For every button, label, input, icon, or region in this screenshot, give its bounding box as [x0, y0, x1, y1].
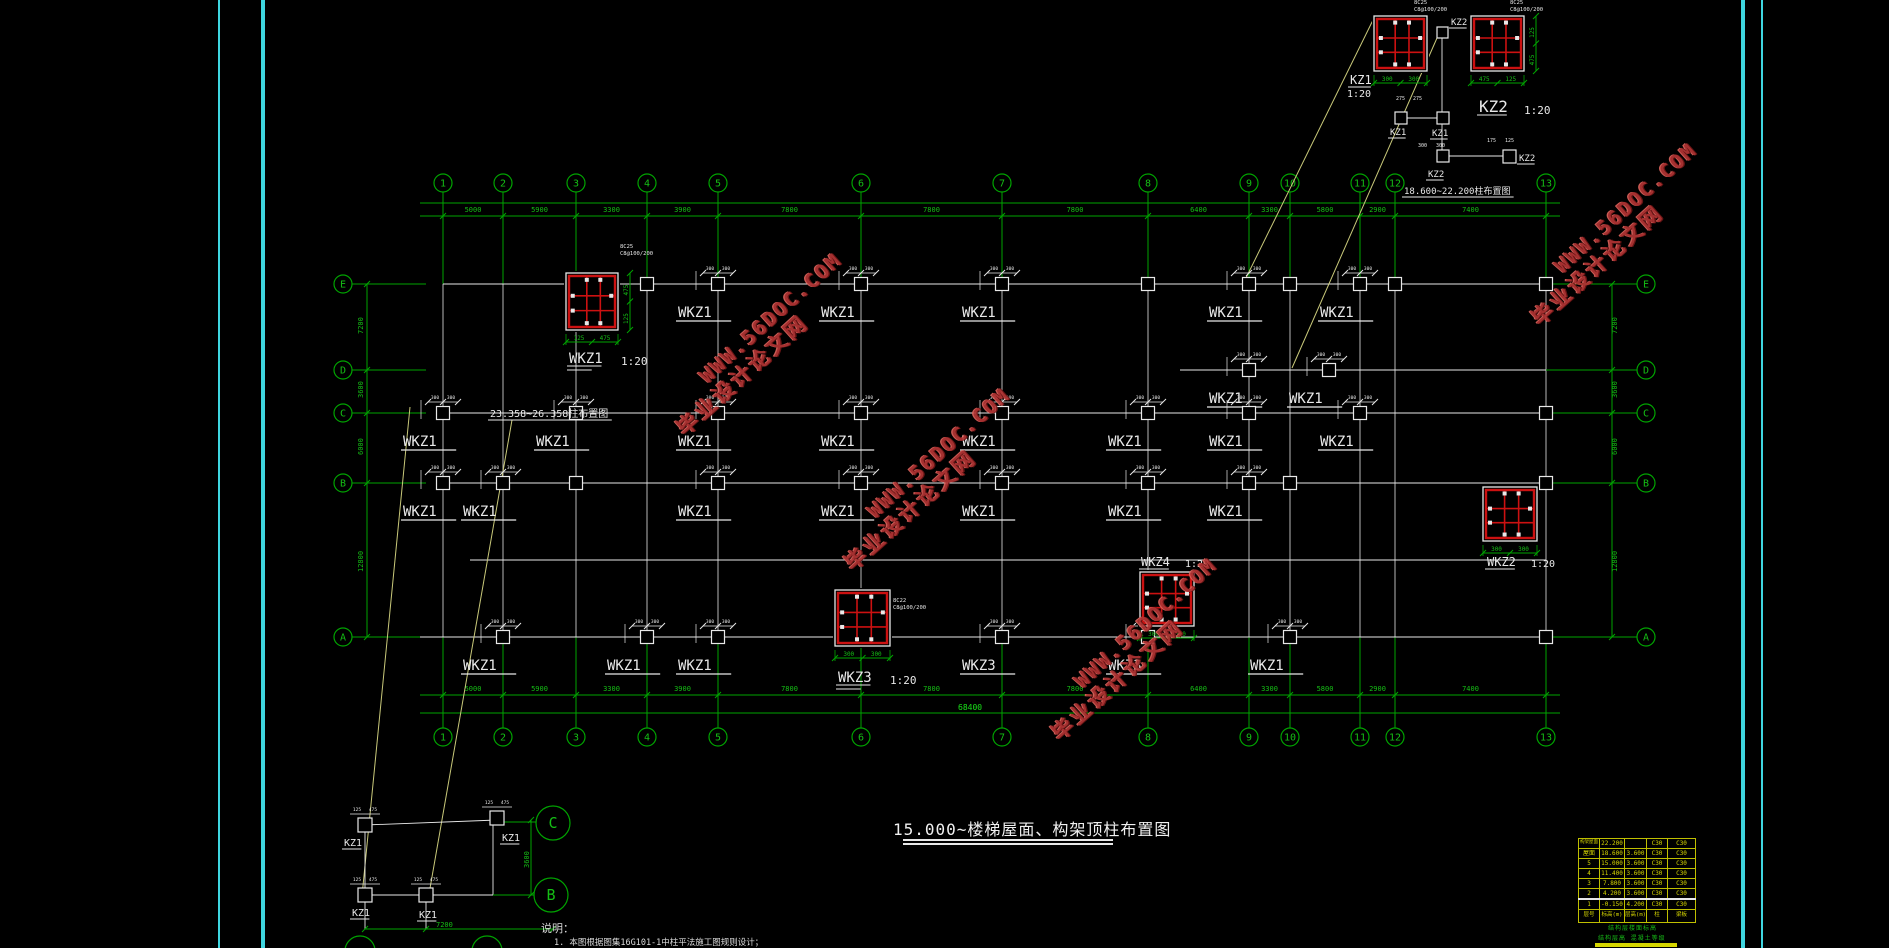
column-label: WKZ1 [821, 434, 855, 450]
detail-dim-text: 300 [1148, 631, 1159, 638]
node-dim-text: 300 [722, 465, 730, 471]
text-label: 175 [1487, 138, 1496, 144]
node-dim-text: 300 [1237, 465, 1245, 471]
dim-text: 5900 [531, 685, 548, 693]
title-underline [903, 839, 1113, 841]
detail-dim-text: 125 [1529, 27, 1536, 38]
detail-dim-text: 475 [600, 335, 611, 342]
text-label: 3600 [523, 851, 531, 868]
grid-bubble-label: E [340, 280, 346, 291]
node-dim-text: 300 [1136, 395, 1144, 401]
node-dim-text: 300 [1237, 352, 1245, 358]
rebar-dot [840, 625, 844, 629]
detail-dim-text: 300 [1408, 76, 1419, 83]
grid-bubble-label: 3 [573, 179, 579, 190]
rebar-dot [1528, 507, 1532, 511]
node-dim-text: 300 [1348, 266, 1356, 272]
table-row: 构架屋面22.200C30C30 [1579, 839, 1696, 849]
dim-text: 2900 [1369, 206, 1386, 214]
rebar-dot [1490, 62, 1494, 66]
annotation: 8C22 [893, 598, 906, 604]
detail-dim-text: 475 [1479, 76, 1490, 83]
grid-bubble-label: 1 [440, 733, 446, 744]
grid-bubble-label: 2 [500, 179, 506, 190]
column-label: WKZ1 [1108, 504, 1142, 520]
node-dim-text: 300 [722, 395, 730, 401]
column-label: WKZ1 [1250, 658, 1284, 674]
detail-dim-text: 125 [574, 335, 585, 342]
annotation: 8C25 [620, 244, 633, 250]
annotation: C8@100/200 [1414, 7, 1447, 13]
column-label: WKZ1 [607, 658, 641, 674]
text-label: 275 [1396, 96, 1405, 102]
table-cell: 15.000 [1600, 859, 1625, 869]
column-node [1284, 278, 1297, 291]
column-node [712, 278, 725, 291]
column-node [1243, 407, 1256, 420]
column-node [712, 631, 725, 644]
node-dim-text: 300 [431, 395, 439, 401]
column-label: WKZ1 [1209, 504, 1243, 520]
node-dim-text: 300 [706, 266, 714, 272]
node-dim-text: 300 [1152, 465, 1160, 471]
dim-text: 3900 [674, 685, 691, 693]
column-label: WKZ1 [962, 305, 996, 321]
annotation: 8C25 [1414, 0, 1427, 6]
node-dim-text: 300 [491, 465, 499, 471]
rebar-dot [855, 637, 859, 641]
text-label: KZ2 [1519, 154, 1535, 164]
table-cell: 3.600 [1625, 879, 1647, 889]
node-dim-text: 300 [865, 395, 873, 401]
node-dim-text: 300 [849, 465, 857, 471]
leader-line [1244, 18, 1374, 282]
table-row: 411.4003.600C30C30 [1579, 869, 1696, 879]
rebar-dot [585, 321, 589, 325]
dim-text: 7400 [1462, 685, 1479, 693]
grid-bubble-label: 4 [644, 179, 650, 190]
node-dim-text: 300 [1317, 352, 1325, 358]
grid-bubble-label: 7 [999, 179, 1005, 190]
grid-bubble-label: 8 [1145, 179, 1151, 190]
dim-text: 7800 [923, 206, 940, 214]
grid-bubble-label: 4 [644, 733, 650, 744]
node-dim-text: 300 [1006, 619, 1014, 625]
grid-bubble-label: 11 [1354, 179, 1366, 190]
column-node [996, 407, 1009, 420]
drawing-canvas[interactable]: 1122334455667788991010111112121313EEDDCC… [0, 0, 1889, 948]
rebar-dot [1515, 36, 1519, 40]
text-label: WKZ3 [838, 670, 872, 686]
column-node [1389, 278, 1402, 291]
column-label: WKZ3 [1108, 658, 1142, 674]
grid-bubble-label: A [340, 633, 346, 644]
node-dim-text: 300 [990, 395, 998, 401]
column-label: WKZ1 [678, 658, 712, 674]
table-row: 37.8003.600C30C30 [1579, 879, 1696, 889]
column-label: WKZ1 [962, 504, 996, 520]
grid-bubble-label: 1 [440, 179, 446, 190]
table-cell: 3.600 [1625, 889, 1647, 900]
node-dim-text: 300 [1253, 352, 1261, 358]
rebar-dot [1379, 36, 1383, 40]
text-label: KZ1 [352, 908, 370, 919]
table-cell: C30 [1668, 879, 1696, 889]
rebar-dot [1185, 592, 1189, 596]
grid-bubble-label: 12 [1389, 179, 1401, 190]
column-node [1540, 278, 1553, 291]
text-label: 300 [1436, 143, 1445, 149]
detail-box-mask [833, 588, 892, 648]
column-node [497, 631, 510, 644]
column-node [437, 477, 450, 490]
rebar-dot [609, 294, 613, 298]
dim-text: 2900 [1369, 685, 1386, 693]
grid-bubble-label: 6 [858, 733, 864, 744]
node-dim-text: 300 [706, 465, 714, 471]
column-label: WKZ3 [962, 658, 996, 674]
text-label: KZ1 [1350, 73, 1372, 87]
detail-dim-text: 300 [1175, 631, 1186, 638]
grid-bubble-label: B [340, 479, 346, 490]
table-header-cell: 标高(m) [1600, 910, 1625, 923]
text-label: 1:20 [1347, 89, 1371, 100]
rebar-dot [1174, 618, 1178, 622]
title-underline [903, 843, 1113, 845]
node-dim-text: 125 [353, 877, 361, 883]
column-label: WKZ1 [403, 504, 437, 520]
rebar-dot [1503, 491, 1507, 495]
plan-drawing: 1122334455667788991010111112121313EEDDCC… [0, 0, 1889, 948]
column-node [1142, 477, 1155, 490]
node-dim-text: 300 [1253, 395, 1261, 401]
table-cell: C30 [1668, 869, 1696, 879]
grid-bubble-label: A [1643, 633, 1649, 644]
grid-bubble-label: 10 [1284, 733, 1296, 744]
detail-dim-text: 300 [843, 651, 854, 658]
node-dim-text: 300 [865, 465, 873, 471]
grid-bubble-label: 13 [1540, 733, 1552, 744]
column-node [1243, 477, 1256, 490]
elevation-table-grid: 构架屋面22.200C30C30屋面18.6003.600C30C30515.0… [1578, 838, 1696, 923]
rebar-dot [869, 637, 873, 641]
dim-text: 5800 [1317, 685, 1334, 693]
column-label: WKZ1 [536, 434, 570, 450]
column-node [1142, 407, 1155, 420]
dim-text: 7800 [1067, 685, 1084, 693]
rebar-dot [571, 309, 575, 313]
node-dim-text: 300 [722, 619, 730, 625]
detail-box-mask [1138, 570, 1196, 628]
grid-bubble-label: B [1643, 479, 1649, 490]
node-dim-text: 475 [501, 800, 509, 806]
text-label: KZ1 [502, 833, 520, 844]
node-dim-text: 300 [865, 266, 873, 272]
rebar-dot [1517, 533, 1521, 537]
table-cell: 4.200 [1600, 889, 1625, 900]
dim-text: 5800 [1317, 206, 1334, 214]
table-row: 屋面18.6003.600C30C30 [1579, 849, 1696, 859]
table-header-cell: 层高(m) [1625, 910, 1647, 923]
column-node [1284, 631, 1297, 644]
rebar-dot [1145, 606, 1149, 610]
text-label: KZ1 [1390, 128, 1406, 138]
dim-text: 3300 [1261, 206, 1278, 214]
text-label: 3600 [357, 381, 365, 398]
column-label: WKZ1 [1108, 434, 1142, 450]
column-label: WKZ1 [463, 658, 497, 674]
grid-bubble-label: 3 [573, 733, 579, 744]
column-node [855, 477, 868, 490]
rebar-dot [1174, 576, 1178, 580]
rebar-dot [598, 321, 602, 325]
table-cell: 7.800 [1600, 879, 1625, 889]
table-cell: 18.600 [1600, 849, 1625, 859]
text-label: 6000 [357, 438, 365, 455]
text-label: KZ2 [1451, 18, 1467, 28]
table-cell: 3.600 [1625, 859, 1647, 869]
rebar-dot [571, 294, 575, 298]
grid-bubble-label: C [1643, 409, 1649, 420]
table-cell: 4 [1579, 869, 1600, 879]
column-node [996, 477, 1009, 490]
column-node [712, 407, 725, 420]
notes-heading: 说明： [541, 920, 574, 936]
table-cell: C30 [1647, 899, 1668, 910]
rebar-dot [1160, 576, 1164, 580]
rebar-dot [598, 278, 602, 282]
node-dim-text: 300 [990, 619, 998, 625]
table-cell: 3.600 [1625, 849, 1647, 859]
grid-bubble-label: 12 [1389, 733, 1401, 744]
rebar-dot [1503, 533, 1507, 537]
grid-bubble-label: 7 [999, 733, 1005, 744]
table-cell: 屋面 [1579, 849, 1600, 859]
node-dim-text: 300 [447, 395, 455, 401]
detail-box-mask [1469, 14, 1526, 73]
table-cell: 22.200 [1600, 839, 1625, 849]
table-header-cell: 层号 [1579, 910, 1600, 923]
column-label: WKZ1 [463, 504, 497, 520]
stair-bubble-partial [472, 936, 502, 948]
node-dim-text: 300 [507, 465, 515, 471]
rebar-dot [855, 595, 859, 599]
table-cell: C30 [1647, 879, 1668, 889]
dim-text: 7800 [781, 685, 798, 693]
column-node [1354, 407, 1367, 420]
grid-bubble-label: 5 [715, 733, 721, 744]
node-dim-text: 475 [369, 877, 377, 883]
table-cell [1625, 839, 1647, 849]
column-label: WKZ1 [962, 434, 996, 450]
rebar-dot [1504, 21, 1508, 25]
table-row: 1-0.1504.200C30C30 [1579, 899, 1696, 910]
node-dim-text: 300 [1278, 619, 1286, 625]
dim-text: 3300 [603, 206, 620, 214]
rebar-dot [1393, 62, 1397, 66]
small-square [1437, 150, 1449, 162]
table-cell: 1 [1579, 899, 1600, 910]
grid-bubble-label: 2 [500, 733, 506, 744]
rebar-dot [1407, 62, 1411, 66]
node-dim-text: 300 [564, 395, 572, 401]
text-label: 23.358~26.358柱布置图 [490, 407, 608, 420]
grid-bubble-label: 9 [1246, 179, 1252, 190]
title-bar [1595, 943, 1677, 947]
node-dim-text: 300 [447, 465, 455, 471]
grid-bubble-label: 5 [715, 179, 721, 190]
column-node [855, 278, 868, 291]
node-dim-text: 300 [1333, 352, 1341, 358]
text-label: KZ2 [1428, 170, 1444, 180]
text-label: 7200 [436, 921, 453, 929]
column-label: WKZ1 [821, 504, 855, 520]
detail-dim-text: 300 [1382, 76, 1393, 83]
grid-bubble-label: C [340, 409, 346, 420]
column-node [1540, 407, 1553, 420]
text-label: KZ1 [1432, 129, 1448, 139]
grid-bubble-label: D [340, 366, 346, 377]
rebar-dot [1488, 507, 1492, 511]
column-label: WKZ1 [678, 305, 712, 321]
column-label: WKZ1 [403, 434, 437, 450]
detail-box-mask [1481, 485, 1539, 543]
stair-node [490, 811, 504, 825]
text-label: 1:20 [1531, 559, 1555, 570]
text-label: 18.600~22.200柱布置图 [1404, 185, 1510, 197]
column-node [1354, 278, 1367, 291]
text-label: WKZ4 [1141, 555, 1170, 569]
text-label: 1:20 [1185, 559, 1209, 570]
rebar-dot [1476, 36, 1480, 40]
table-cell: C30 [1647, 889, 1668, 900]
dim-text: 6400 [1190, 685, 1207, 693]
node-dim-text: 300 [1237, 395, 1245, 401]
node-dim-text: 300 [849, 266, 857, 272]
node-dim-text: 475 [369, 807, 377, 813]
text-label: 1:20 [890, 674, 917, 687]
column-node [712, 477, 725, 490]
small-square [1503, 150, 1516, 163]
text-label: 125 [1505, 138, 1514, 144]
elevation-table: 构架屋面22.200C30C30屋面18.6003.600C30C30515.0… [1578, 838, 1696, 923]
dim-text: 7800 [781, 206, 798, 214]
annotation: 8C25 [1510, 0, 1523, 6]
column-node [497, 477, 510, 490]
stair-bubble-partial [345, 936, 375, 948]
grid-bubble-label: 11 [1354, 733, 1366, 744]
table-cell: C30 [1647, 839, 1668, 849]
node-dim-text: 300 [507, 619, 515, 625]
node-dim-text: 300 [1136, 465, 1144, 471]
node-dim-text: 475 [430, 877, 438, 883]
table-cell: C30 [1647, 849, 1668, 859]
table-footer-line1: 结构层楼面标高 [1608, 923, 1657, 932]
note-item: 1. 本图根据图集16G101-1中柱平法施工图规则设计； [554, 936, 763, 948]
table-cell: 2 [1579, 889, 1600, 900]
table-cell: 构架屋面 [1579, 839, 1600, 849]
grid-bubble-label: 9 [1246, 733, 1252, 744]
rebar-dot [1476, 50, 1480, 54]
column-label: WKZ1 [821, 305, 855, 321]
stair-node [358, 888, 372, 902]
table-cell: 3 [1579, 879, 1600, 889]
rebar-dot [1393, 21, 1397, 25]
dim-text: 7400 [1462, 206, 1479, 214]
table-cell: C30 [1647, 869, 1668, 879]
column-label: WKZ1 [1289, 391, 1323, 407]
column-node [570, 477, 583, 490]
grid-bubble-label: 6 [858, 179, 864, 190]
node-dim-text: 300 [722, 266, 730, 272]
column-label: WKZ1 [678, 504, 712, 520]
node-dim-text: 125 [414, 877, 422, 883]
rebar-dot [1418, 36, 1422, 40]
column-node [641, 631, 654, 644]
node-dim-text: 300 [1006, 395, 1014, 401]
detail-dim-text: 300 [871, 651, 882, 658]
text-label: 1:20 [1524, 104, 1551, 117]
table-cell: 3.600 [1625, 869, 1647, 879]
column-node [1540, 631, 1553, 644]
text-label: KZ1 [344, 838, 362, 849]
annotation: C8@100/200 [1510, 7, 1543, 13]
dim-text: 5000 [465, 206, 482, 214]
table-cell: -0.150 [1600, 899, 1625, 910]
small-square [1437, 112, 1449, 124]
rebar-dot [1517, 491, 1521, 495]
column-node [1284, 477, 1297, 490]
text-label: 68400 [958, 703, 982, 712]
node-dim-text: 300 [706, 395, 714, 401]
table-cell: 4.200 [1625, 899, 1647, 910]
table-row: 24.2003.600C30C30 [1579, 889, 1696, 900]
table-cell: C30 [1668, 839, 1696, 849]
node-dim-text: 300 [580, 395, 588, 401]
column-node [1540, 477, 1553, 490]
node-dim-text: 300 [635, 619, 643, 625]
table-header-row: 层号标高(m)层高(m)柱梁板 [1579, 910, 1696, 923]
text-label: KZ1 [419, 910, 437, 921]
node-dim-text: 300 [990, 266, 998, 272]
node-dim-text: 300 [1348, 395, 1356, 401]
stair-bubble-label: C [548, 814, 557, 832]
table-cell: 5 [1579, 859, 1600, 869]
table-cell: C30 [1668, 859, 1696, 869]
text-label: KZ2 [1479, 97, 1508, 116]
page-title: 15.000~楼梯屋面、构架顶柱布置图 [893, 816, 1171, 840]
column-label: WKZ1 [678, 434, 712, 450]
node-dim-text: 300 [491, 619, 499, 625]
node-dim-text: 300 [1364, 266, 1372, 272]
node-dim-text: 300 [1152, 395, 1160, 401]
node-dim-text: 300 [1294, 619, 1302, 625]
node-dim-text: 300 [990, 465, 998, 471]
table-header-cell: 梁板 [1668, 910, 1696, 923]
text-label: 275 [1413, 96, 1422, 102]
rebar-dot [1145, 592, 1149, 596]
column-node [1323, 364, 1336, 377]
column-node [1142, 278, 1155, 291]
rebar-dot [1379, 50, 1383, 54]
dim-text: 5000 [465, 685, 482, 693]
table-cell: C30 [1668, 889, 1696, 900]
text-label: WKZ1 [569, 351, 603, 367]
stair-line [365, 820, 497, 825]
annotation: C8@100/200 [620, 251, 653, 257]
column-node [437, 407, 450, 420]
column-label: WKZ1 [1320, 305, 1354, 321]
